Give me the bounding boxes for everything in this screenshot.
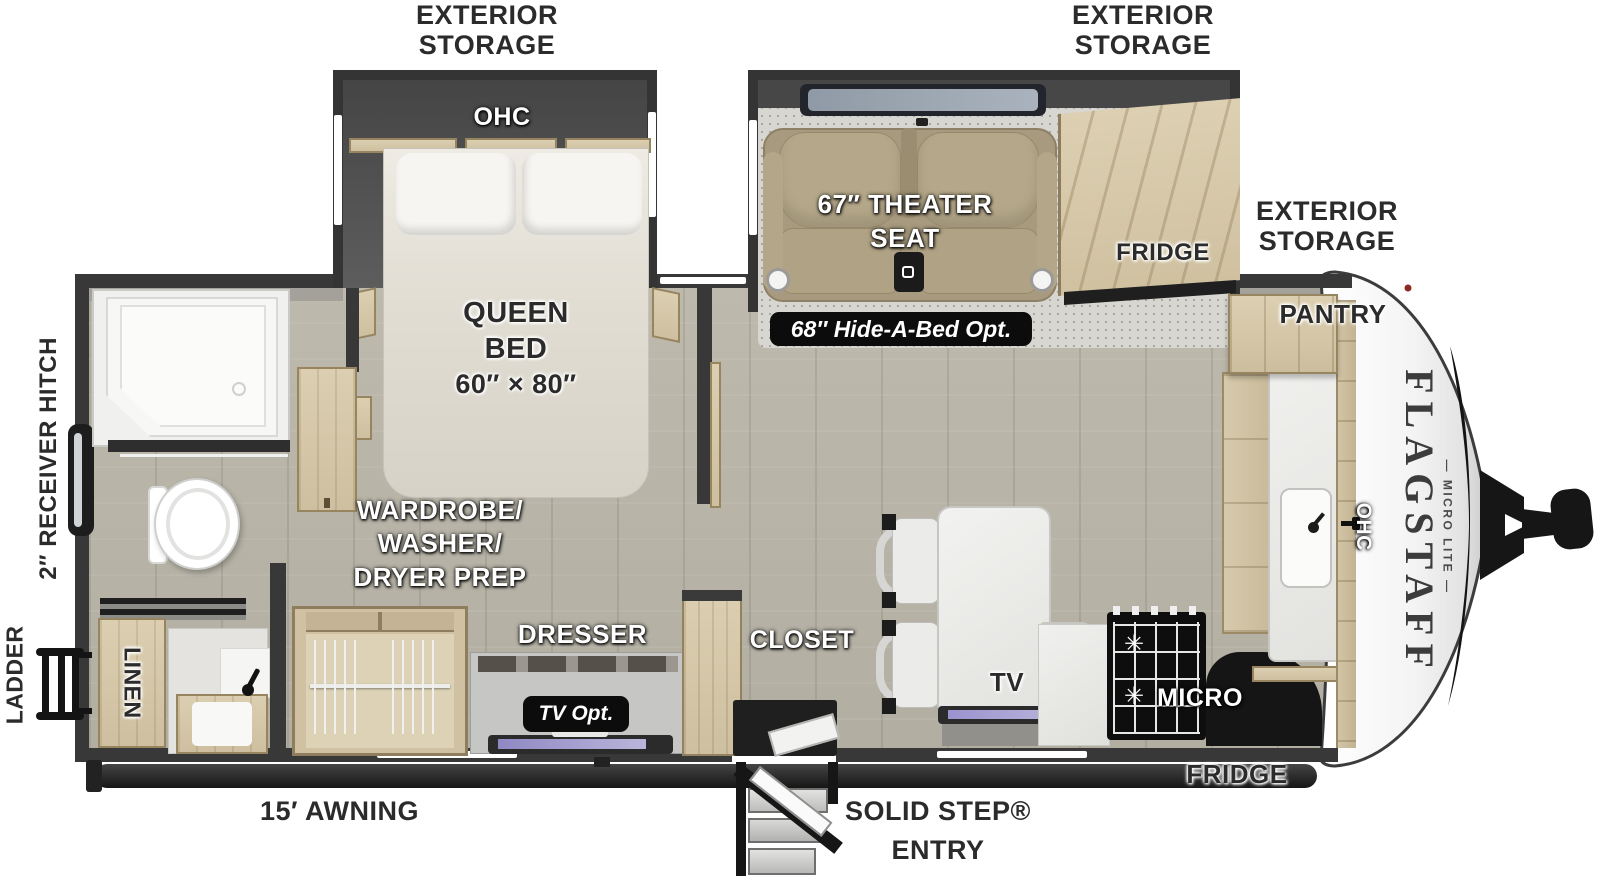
theater-slide-window-left bbox=[749, 120, 757, 235]
cupholder-left bbox=[766, 268, 790, 292]
label-solid-step-entry: SOLID STEP® ENTRY bbox=[843, 792, 1033, 870]
theater-console-icon bbox=[902, 266, 914, 278]
awning-bracket-mid bbox=[594, 757, 610, 767]
floorplan-canvas: 68″ Hide-A-Bed Opt. bbox=[0, 0, 1600, 881]
wall-bath-bedroom-upper bbox=[346, 288, 359, 372]
label-exterior-storage-living: EXTERIOR STORAGE bbox=[1063, 0, 1223, 60]
label-exterior-storage-front: EXTERIOR STORAGE bbox=[1248, 196, 1406, 256]
wall-top-right bbox=[1232, 274, 1352, 288]
dresser-tv-screen bbox=[498, 739, 646, 749]
bath-sink-basin bbox=[192, 702, 252, 746]
hitch-coupler bbox=[1480, 470, 1595, 580]
window-top-middle bbox=[660, 277, 746, 284]
kitchen-counter-left bbox=[1038, 624, 1110, 746]
label-tv-opt: TV Opt. bbox=[523, 696, 629, 732]
label-fridge-exterior: FRIDGE bbox=[1177, 760, 1297, 789]
range-burner-1: ✳ bbox=[1124, 630, 1144, 659]
shower-drain bbox=[232, 382, 246, 396]
label-ohc-bedroom: OHC bbox=[432, 103, 572, 131]
bed-pillow-left bbox=[396, 153, 516, 235]
solid-step-rail-right bbox=[828, 762, 838, 804]
chair-bracket-4 bbox=[882, 698, 896, 714]
chair-bracket-1 bbox=[882, 514, 896, 530]
nightstand-right bbox=[652, 287, 680, 343]
partition-end-cap bbox=[710, 362, 721, 508]
ladder-rung-1 bbox=[42, 648, 49, 720]
label-ohc-kitchen: OHC bbox=[1346, 492, 1380, 562]
chair-bracket-3 bbox=[882, 620, 896, 636]
bath-shelf-bar bbox=[108, 440, 290, 452]
label-queen-bed: QUEEN BED 60″ × 80″ bbox=[406, 296, 626, 401]
ladder-rung-2 bbox=[58, 648, 65, 720]
window-bottom-right bbox=[937, 751, 1087, 758]
wardrobe-hangers-left bbox=[314, 640, 360, 734]
closet-top-cap bbox=[682, 590, 742, 601]
label-receiver-hitch: 2″ RECEIVER HITCH bbox=[30, 288, 68, 628]
bath-towel-rod bbox=[120, 454, 288, 457]
label-ladder: LADDER bbox=[0, 616, 30, 734]
cupholder-right bbox=[1030, 268, 1054, 292]
kitchen-base-cabinets bbox=[1222, 372, 1270, 634]
hide-a-bed-text: 68″ Hide-A-Bed Opt. bbox=[791, 316, 1012, 343]
brand-micro-lite: — MICRO LITE — bbox=[1434, 452, 1460, 602]
ladder-mount-top bbox=[78, 652, 92, 658]
label-closet: CLOSET bbox=[732, 626, 872, 654]
dinette-chair-1-seat bbox=[892, 518, 940, 604]
ladder-mount-bottom bbox=[78, 708, 92, 714]
label-dresser: DRESSER bbox=[510, 620, 655, 649]
kitchen-shelf bbox=[1252, 666, 1344, 682]
wall-top-left bbox=[75, 274, 343, 288]
rear-window-glass bbox=[74, 433, 82, 527]
chair-bracket-2 bbox=[882, 592, 896, 608]
bedroom-slide-window-left bbox=[334, 115, 342, 225]
theater-window-latch bbox=[916, 118, 928, 126]
medicine-cabinet bbox=[297, 367, 357, 512]
theater-window-glass bbox=[808, 89, 1038, 111]
label-tv: TV bbox=[977, 668, 1037, 697]
awning-rail bbox=[95, 764, 1317, 788]
shower-glass-line bbox=[120, 305, 266, 427]
label-theater-seat: 67″ THEATER SEAT bbox=[795, 188, 1015, 256]
label-wardrobe-washer-dryer: WARDROBE/ WASHER/ DRYER PREP bbox=[330, 494, 550, 594]
label-fridge-upper: FRIDGE bbox=[1103, 240, 1223, 267]
kitchen-sink bbox=[1280, 488, 1332, 588]
bedroom-slide-window-right bbox=[648, 112, 656, 217]
linen-upper-slats bbox=[100, 598, 246, 620]
hide-a-bed-label: 68″ Hide-A-Bed Opt. bbox=[770, 312, 1032, 346]
label-awning: 15′ AWNING bbox=[257, 796, 422, 826]
dinette-chair-2-seat bbox=[892, 622, 940, 708]
bed-pillow-right bbox=[522, 153, 642, 235]
solid-step-tread-3 bbox=[748, 848, 816, 875]
wardrobe-shelf-divider bbox=[378, 612, 382, 632]
toilet-seat-ring bbox=[166, 488, 230, 560]
dresser-drawer-slots bbox=[478, 656, 678, 672]
awning-bracket-left bbox=[86, 760, 102, 792]
label-linen: LINEN bbox=[112, 622, 152, 744]
label-exterior-storage-bedroom: EXTERIOR STORAGE bbox=[407, 0, 567, 60]
clearance-light bbox=[1405, 285, 1412, 292]
wall-bath-lower bbox=[270, 563, 286, 753]
label-pantry: PANTRY bbox=[1258, 300, 1408, 329]
range-knobs bbox=[1113, 606, 1201, 615]
label-micro: MICRO bbox=[1138, 684, 1262, 712]
wardrobe-hangers-right bbox=[392, 640, 438, 734]
